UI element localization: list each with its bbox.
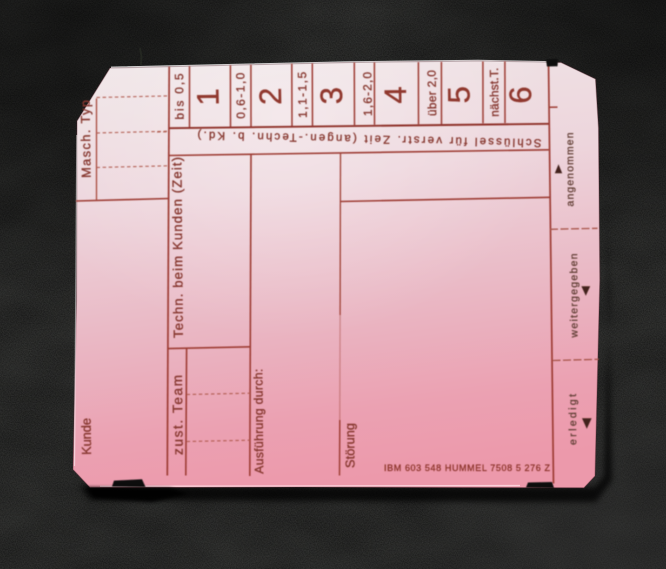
- svg-text:IBM 603 548 HUMMEL 7508 5 27: IBM 603 548 HUMMEL 7508 5 276 Z: [384, 463, 551, 473]
- svg-text:6: 6: [503, 86, 538, 104]
- svg-text:5: 5: [441, 86, 476, 104]
- svg-text:Ausführung durch:: Ausführung durch:: [251, 369, 266, 474]
- svg-text:zust. Team: zust. Team: [170, 375, 186, 455]
- svg-text:Masch. Typ: Masch. Typ: [78, 100, 94, 178]
- svg-text:4: 4: [378, 86, 413, 104]
- svg-text:1: 1: [190, 88, 225, 106]
- svg-text:2: 2: [253, 87, 288, 105]
- svg-text:Techn. beim Kunden (Zeit): Techn. beim Kunden (Zeit): [169, 157, 186, 338]
- svg-text:3: 3: [314, 87, 349, 105]
- svg-text:über 2,0: über 2,0: [425, 70, 440, 117]
- svg-text:angenommen: angenommen: [565, 132, 576, 206]
- svg-text:nächst.T.: nächst.T.: [487, 68, 502, 117]
- svg-text:Störung: Störung: [342, 423, 357, 468]
- svg-text:Kunde: Kunde: [79, 418, 95, 455]
